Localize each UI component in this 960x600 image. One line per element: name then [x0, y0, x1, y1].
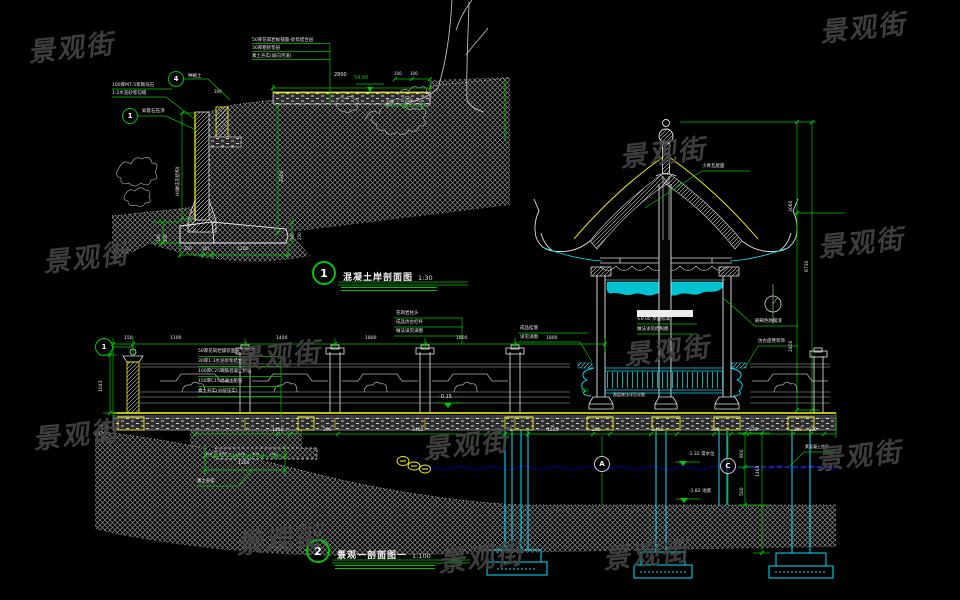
annotation: 1300 [238, 461, 249, 466]
detail1-title: 1 混凝土岸剖面图1:30 [312, 261, 437, 288]
annotation: 1800 [365, 336, 376, 341]
axis-bubble-C: C [720, 458, 736, 474]
annotation: 130 [269, 452, 276, 456]
annotation: 1463 [756, 466, 761, 477]
cad-drawing-canvas: 1 混凝土岸剖面图1:30 2 景观一剖面图一1:100 50厚花岗岩板铺面-砂… [0, 0, 960, 600]
annotation: 3060 [789, 201, 794, 212]
annotation: 165 [202, 247, 210, 252]
annotation: 素土夯实 [197, 479, 215, 484]
detail2-scale: 1:100 [412, 552, 431, 560]
annotation: 素土夯实(分层压实) [198, 389, 238, 394]
annotation: 400 [252, 452, 259, 456]
detail2-title-text: 景观一剖面图一 [337, 551, 407, 561]
annotation: 1:2水泥砂浆勾缝 [112, 91, 146, 96]
pavilion-balusters [605, 372, 723, 388]
annotation: 详见详图 [520, 335, 538, 340]
annotation: -1.32 常水位 [688, 452, 715, 457]
annotation: 100 [394, 72, 402, 77]
bedding-band [209, 137, 241, 147]
annotation: 2400 [789, 341, 794, 352]
column-cap-right [719, 267, 739, 276]
detail1-title-text: 混凝土岸剖面图 [343, 273, 413, 283]
annotation: 270 [749, 428, 758, 433]
annotation: 2800 [334, 73, 347, 79]
annotation: 250 [298, 232, 303, 240]
annotation: 1200 [237, 247, 248, 252]
ridge-band-right [664, 175, 742, 249]
annotation: 30厚粗砂垫层 [252, 46, 280, 51]
annotation: 500 [740, 487, 745, 496]
annotation: 54.60 [354, 76, 368, 82]
annotation: 面层做法详见详图 [613, 393, 645, 398]
annotation: 6730 [805, 261, 810, 272]
annotation: 350 [291, 232, 296, 240]
annotation: 如意石压顶 [142, 109, 165, 114]
annotation: 1410 [272, 428, 283, 433]
annotation: 花岗岩柱头 [396, 311, 419, 316]
annotation: -1.82 池底 [689, 489, 711, 494]
annotation: 1525 [547, 428, 558, 433]
annotation: 2300 [280, 171, 285, 182]
seat-goblet-right [730, 368, 742, 396]
annotation: 200 [592, 428, 601, 433]
annotation: 1800 [546, 336, 557, 341]
detail1-number-circle: 1 [312, 261, 336, 285]
lamp-post [123, 349, 143, 413]
annotation: -0.15 [439, 395, 452, 401]
annotation: H(做法见结构) [176, 167, 181, 196]
detail1-scale: 1:30 [418, 274, 433, 282]
annotation: 50厚花岗岩板铺面-砂浆结合层 [252, 38, 313, 43]
finial-ball [663, 120, 670, 127]
annotation: 350 [184, 247, 192, 252]
annotation: 仿古座凳装饰 [758, 339, 785, 344]
annotation: 3465 [412, 428, 423, 433]
annotation: 470 [219, 452, 226, 456]
annotation: 100 [205, 452, 212, 456]
column-cap-left [591, 267, 611, 276]
detail-marker-1: 1 [122, 108, 138, 124]
annotation: 1800 [456, 336, 467, 341]
annotation: 100 [410, 72, 418, 77]
annotation: 150 [124, 336, 133, 341]
annotation: ±0.00 亭面标高 [637, 317, 670, 322]
annotation: 100 [386, 100, 394, 105]
abutment-footing-dashed [215, 448, 317, 459]
annotation: 200 [809, 428, 817, 433]
annotation: 素土夯实(坡向河道) [252, 54, 292, 59]
ridge-band-left [590, 175, 668, 249]
annotation: 160 [157, 234, 162, 242]
column-bases [589, 397, 739, 409]
detail-marker-1: 1 [95, 338, 113, 356]
annotation: 做法详见详图 [396, 329, 423, 334]
annotation: 成品挂落 [520, 326, 538, 331]
annotation: 200 [238, 452, 245, 456]
elevation-triangle-54-60 [367, 87, 373, 92]
detail2-title: 2 景观一剖面图一1:100 [306, 539, 435, 566]
annotation: 刷褐色防腐漆 [755, 319, 782, 324]
annotation: 100 [164, 234, 169, 242]
curb [216, 107, 228, 138]
cad-linework [0, 0, 960, 600]
annotation: 成品仿古栏杆 [396, 320, 423, 325]
annotation: 1043 [99, 381, 104, 392]
annotation: 150厚C15混凝土垫层 [198, 379, 242, 384]
axis-bubble-A: A [594, 456, 610, 472]
annotation: 2400 [652, 428, 663, 433]
annotation: 500 [581, 389, 589, 394]
annotation: 200 [323, 428, 332, 433]
label-highlight-bar [637, 310, 693, 317]
annotation: 800 [740, 449, 745, 458]
annotation: 1100 [170, 336, 181, 341]
annotation: 100 [404, 100, 412, 105]
annotation: 种植土 [188, 74, 202, 79]
annotation: 200 [794, 428, 802, 433]
annotation: 200 [711, 428, 720, 433]
detail-marker-4: 4 [168, 71, 184, 87]
annotation: 300 [214, 90, 222, 95]
annotation: 50厚花岗岩铺装面层 [198, 349, 240, 354]
annotation: 100厚M7.5浆砌块石 [112, 83, 154, 88]
